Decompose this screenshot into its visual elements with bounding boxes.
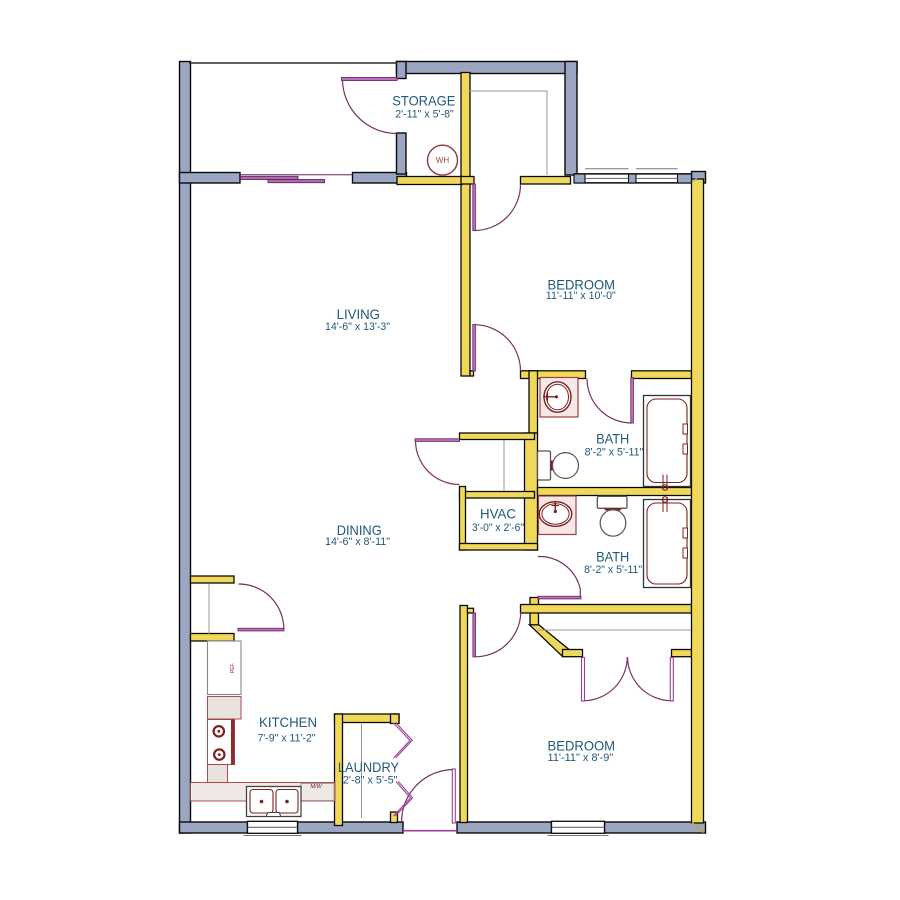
svg-text:BATH: BATH bbox=[596, 431, 629, 447]
svg-text:LAUNDRY: LAUNDRY bbox=[338, 759, 400, 775]
svg-text:REF.: REF. bbox=[230, 663, 236, 674]
svg-text:14'-6" x 13'-3": 14'-6" x 13'-3" bbox=[325, 321, 390, 333]
svg-text:WH: WH bbox=[436, 156, 450, 165]
svg-text:KITCHEN: KITCHEN bbox=[259, 714, 317, 730]
svg-text:7'-9" x 11'-2": 7'-9" x 11'-2" bbox=[257, 732, 315, 744]
svg-text:11'-11" x 8'-9": 11'-11" x 8'-9" bbox=[548, 752, 614, 764]
svg-text:14'-6" x 8'-11": 14'-6" x 8'-11" bbox=[325, 536, 390, 548]
svg-text:2'-8" x 5'-5": 2'-8" x 5'-5" bbox=[343, 774, 398, 786]
svg-text:2'-11" x 5'-8": 2'-11" x 5'-8" bbox=[395, 109, 454, 121]
svg-text:M/W: M/W bbox=[310, 784, 322, 790]
svg-text:8'-2" x 5'-11": 8'-2" x 5'-11" bbox=[585, 447, 644, 459]
svg-text:HVAC: HVAC bbox=[480, 506, 516, 522]
svg-text:STORAGE: STORAGE bbox=[392, 93, 455, 109]
svg-text:LIVING: LIVING bbox=[337, 306, 380, 322]
svg-text:3'-0" x 2'-6": 3'-0" x 2'-6" bbox=[472, 522, 524, 534]
svg-text:11'-11" x 10'-0": 11'-11" x 10'-0" bbox=[546, 290, 616, 302]
svg-text:BATH: BATH bbox=[596, 549, 629, 565]
svg-text:8'-2" x 5'-11": 8'-2" x 5'-11" bbox=[584, 564, 642, 576]
